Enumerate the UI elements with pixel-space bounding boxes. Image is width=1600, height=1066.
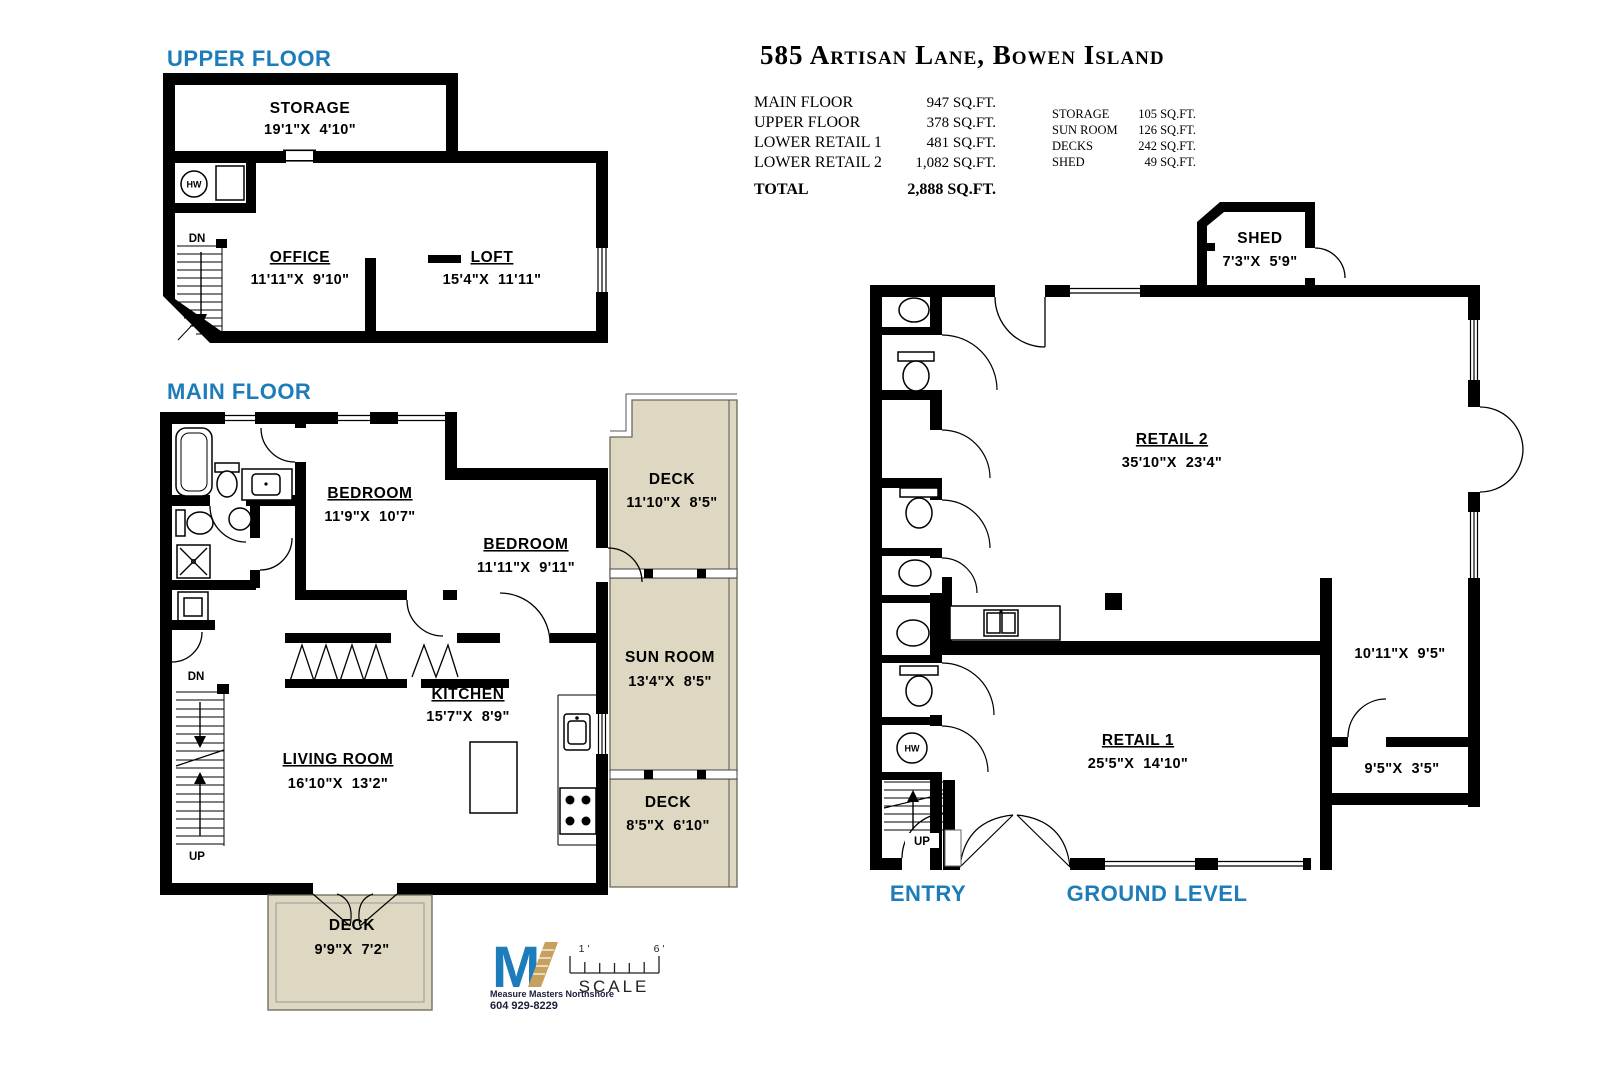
vanity-sink — [242, 469, 292, 500]
bathroom2-door-opening — [250, 538, 260, 570]
summary-label: LOWER RETAIL 1 — [754, 134, 882, 151]
right-double-door-swing — [1480, 407, 1523, 492]
dn-label: DN — [188, 671, 205, 683]
page-title: 585 Artisan Lane, Bowen Island — [760, 40, 1165, 70]
upper-floor-plan: UPPER FLOOR HW DN — [163, 46, 608, 343]
right-window-1 — [1471, 320, 1478, 380]
ground-wall-left — [870, 285, 882, 870]
ground-wall-right — [1468, 578, 1480, 807]
sunroom-door-opening — [596, 548, 608, 582]
support-post — [1105, 593, 1122, 610]
cabinet — [216, 166, 244, 200]
kitchen-sink — [564, 714, 590, 750]
bedroom2-wall-bottom-b — [550, 633, 608, 643]
loft-dims: 15'4"X 11'11" — [443, 272, 542, 288]
kitchen-island — [470, 742, 517, 813]
storage-room — [175, 85, 446, 151]
summary-table: MAIN FLOOR 947 SQ.FT. UPPER FLOOR 378 SQ… — [754, 94, 1196, 198]
retail1-label: RETAIL 1 — [1102, 732, 1174, 749]
retail-counter — [950, 606, 1060, 640]
hw-label: HW — [905, 744, 920, 754]
retail-divider-wall — [930, 641, 1332, 655]
retail2-door-swing — [995, 297, 1045, 347]
summary-value: 947 SQ.FT. — [927, 95, 996, 111]
office-loft-divider — [365, 258, 376, 331]
floorplan-page: 585 Artisan Lane, Bowen Island MAIN FLOO… — [0, 0, 1600, 1066]
stair-newel — [217, 684, 229, 694]
deck-door-opening — [313, 883, 397, 895]
loft-label: LOFT — [471, 249, 514, 266]
header: 585 Artisan Lane, Bowen Island MAIN FLOO… — [754, 40, 1196, 198]
up-label: UP — [189, 851, 205, 863]
kitchen-label: KITCHEN — [431, 686, 504, 703]
side-room-door-swing — [1348, 699, 1386, 737]
upper-floor-heading: UPPER FLOOR — [167, 46, 331, 71]
side-room-divider-b — [1386, 737, 1480, 747]
deck-sunroom-rail — [610, 569, 737, 578]
ground-level-plan: SHED 7'3"X 5'9" — [870, 202, 1523, 906]
summary-value: 481 SQ.FT. — [927, 135, 996, 151]
sink — [899, 560, 931, 586]
logo-phone: 604 929-8229 — [490, 1000, 558, 1012]
round-fixture — [229, 508, 251, 530]
toilet-main — [215, 463, 239, 497]
storage-dims: 19'1"X 4'10" — [264, 122, 356, 138]
scale-right-tick: 6 ' — [654, 943, 665, 955]
main-floor-heading: MAIN FLOOR — [167, 379, 311, 404]
summary-value: 1,082 SQ.FT. — [915, 155, 996, 171]
storage-door-opening — [283, 146, 316, 168]
summary-value: 378 SQ.FT. — [927, 115, 996, 131]
side-room-divider-a — [1332, 737, 1348, 747]
stove — [560, 788, 596, 834]
bedroom2-label: BEDROOM — [483, 536, 568, 553]
side-room-lower-dims: 9'5"X 3'5" — [1364, 761, 1439, 777]
hw-closet-wall — [246, 163, 256, 208]
bathroom1-door-opening — [295, 428, 306, 462]
ground-wall-right — [1468, 285, 1480, 320]
shed-dims: 7'3"X 5'9" — [1222, 254, 1297, 270]
shed-wall-stub — [1197, 243, 1215, 251]
retail2-label: RETAIL 2 — [1136, 431, 1208, 448]
summary-label: MAIN FLOOR — [754, 94, 853, 111]
side-room-wall-bottom — [1332, 793, 1480, 805]
loft-wall-stub — [428, 255, 461, 263]
shed-door-swing — [1315, 248, 1345, 278]
summary-value: 105 SQ.FT. — [1138, 107, 1196, 121]
sun-room-label: SUN ROOM — [625, 649, 715, 666]
sun-room-dims: 13'4"X 8'5" — [628, 674, 712, 690]
hw-closet-wall-bottom — [175, 203, 256, 213]
ground-wall-right — [1468, 380, 1480, 407]
bedroom2-wall-bottom-a — [457, 633, 500, 643]
summary-total-label: TOTAL — [754, 181, 809, 198]
deck-bottom-label: DECK — [329, 917, 376, 934]
shed-label: SHED — [1237, 230, 1282, 247]
upper-right-window — [596, 248, 608, 292]
hw-label: HW — [187, 180, 202, 190]
kitchen-window — [596, 714, 608, 754]
summary-value: 49 SQ.FT. — [1144, 155, 1196, 169]
sunroom-deck-rail — [610, 770, 737, 779]
stair-newel — [216, 239, 227, 248]
summary-label: SUN ROOM — [1052, 123, 1118, 137]
office-dims: 11'11"X 9'10" — [251, 272, 350, 288]
bedroom1-dims: 11'9"X 10'7" — [324, 509, 415, 525]
floorplan-canvas: 585 Artisan Lane, Bowen Island MAIN FLOO… — [0, 0, 1600, 1066]
ground-wall-right — [1468, 492, 1480, 512]
bedroom2-dims: 11'11"X 9'11" — [477, 560, 575, 576]
summary-total-value: 2,888 SQ.FT. — [907, 181, 996, 198]
entry-heading: ENTRY — [890, 881, 966, 906]
scale-bar — [570, 956, 659, 973]
side-room-wall — [1320, 578, 1332, 870]
wall-gap — [1311, 858, 1320, 870]
deck-mid-label: DECK — [645, 794, 692, 811]
shed-interior — [1207, 212, 1305, 285]
hall-wall — [285, 633, 391, 643]
sink — [897, 620, 929, 646]
scale-left-tick: 1 ' — [579, 943, 590, 955]
summary-label: LOWER RETAIL 2 — [754, 154, 882, 171]
storage-label: STORAGE — [270, 100, 351, 117]
living-room-label: LIVING ROOM — [283, 751, 394, 768]
washroom-divider-walls — [882, 327, 930, 780]
deck-upper-label: DECK — [649, 471, 696, 488]
shower — [177, 545, 210, 578]
scale-label: SCALE — [579, 977, 650, 996]
deck-mid-dims: 8'5"X 6'10" — [626, 818, 710, 834]
summary-value: 126 SQ.FT. — [1138, 123, 1196, 137]
hall-wall-bottom-a — [285, 679, 407, 688]
bottom-window-2 — [1218, 858, 1303, 870]
toilet-bath2 — [176, 510, 213, 536]
toilet — [898, 352, 934, 391]
entry-double-door-opening — [960, 858, 1070, 870]
retail1-dims: 25'5"X 14'10" — [1088, 756, 1188, 772]
bedroom1-label: BEDROOM — [327, 485, 412, 502]
stair-arrow-up — [907, 790, 919, 802]
living-room-dims: 16'10"X 13'2" — [288, 776, 388, 792]
main-floor-plan: MAIN FLOOR — [160, 379, 737, 1010]
top-wall-window — [1070, 285, 1140, 297]
deck-upper-dims: 11'10"X 8'5" — [626, 495, 717, 511]
washroom-door-swings — [942, 335, 997, 772]
deck-upper — [610, 400, 737, 577]
ground-level-heading: GROUND LEVEL — [1067, 881, 1248, 906]
summary-label: STORAGE — [1052, 107, 1110, 121]
summary-value: 242 SQ.FT. — [1138, 139, 1196, 153]
footer: M Measure Masters Northshore 604 929-822… — [490, 935, 664, 1012]
summary-label: DECKS — [1052, 139, 1093, 153]
bedroom1-door-opening — [407, 590, 443, 600]
summary-label: UPPER FLOOR — [754, 114, 861, 131]
sink — [899, 298, 929, 322]
retail2-dims: 35'10"X 23'4" — [1122, 455, 1222, 471]
ground-wall-top — [870, 285, 1480, 297]
bathroom2-wall-bottom — [160, 580, 256, 590]
right-window-2 — [1471, 512, 1478, 578]
up-label: UP — [914, 836, 930, 848]
shed-door-opening — [1305, 248, 1315, 278]
side-room-upper-dims: 10'11"X 9'5" — [1354, 646, 1445, 662]
bottom-window-1 — [1105, 858, 1195, 870]
dn-label: DN — [189, 233, 206, 245]
deck-bottom-dims: 9'9"X 7'2" — [314, 942, 389, 958]
retail2-door-opening — [995, 285, 1045, 297]
stair-nook — [945, 830, 961, 866]
office-label: OFFICE — [270, 249, 330, 266]
kitchen-dims: 15'7"X 8'9" — [426, 709, 510, 725]
summary-label: SHED — [1052, 155, 1085, 169]
